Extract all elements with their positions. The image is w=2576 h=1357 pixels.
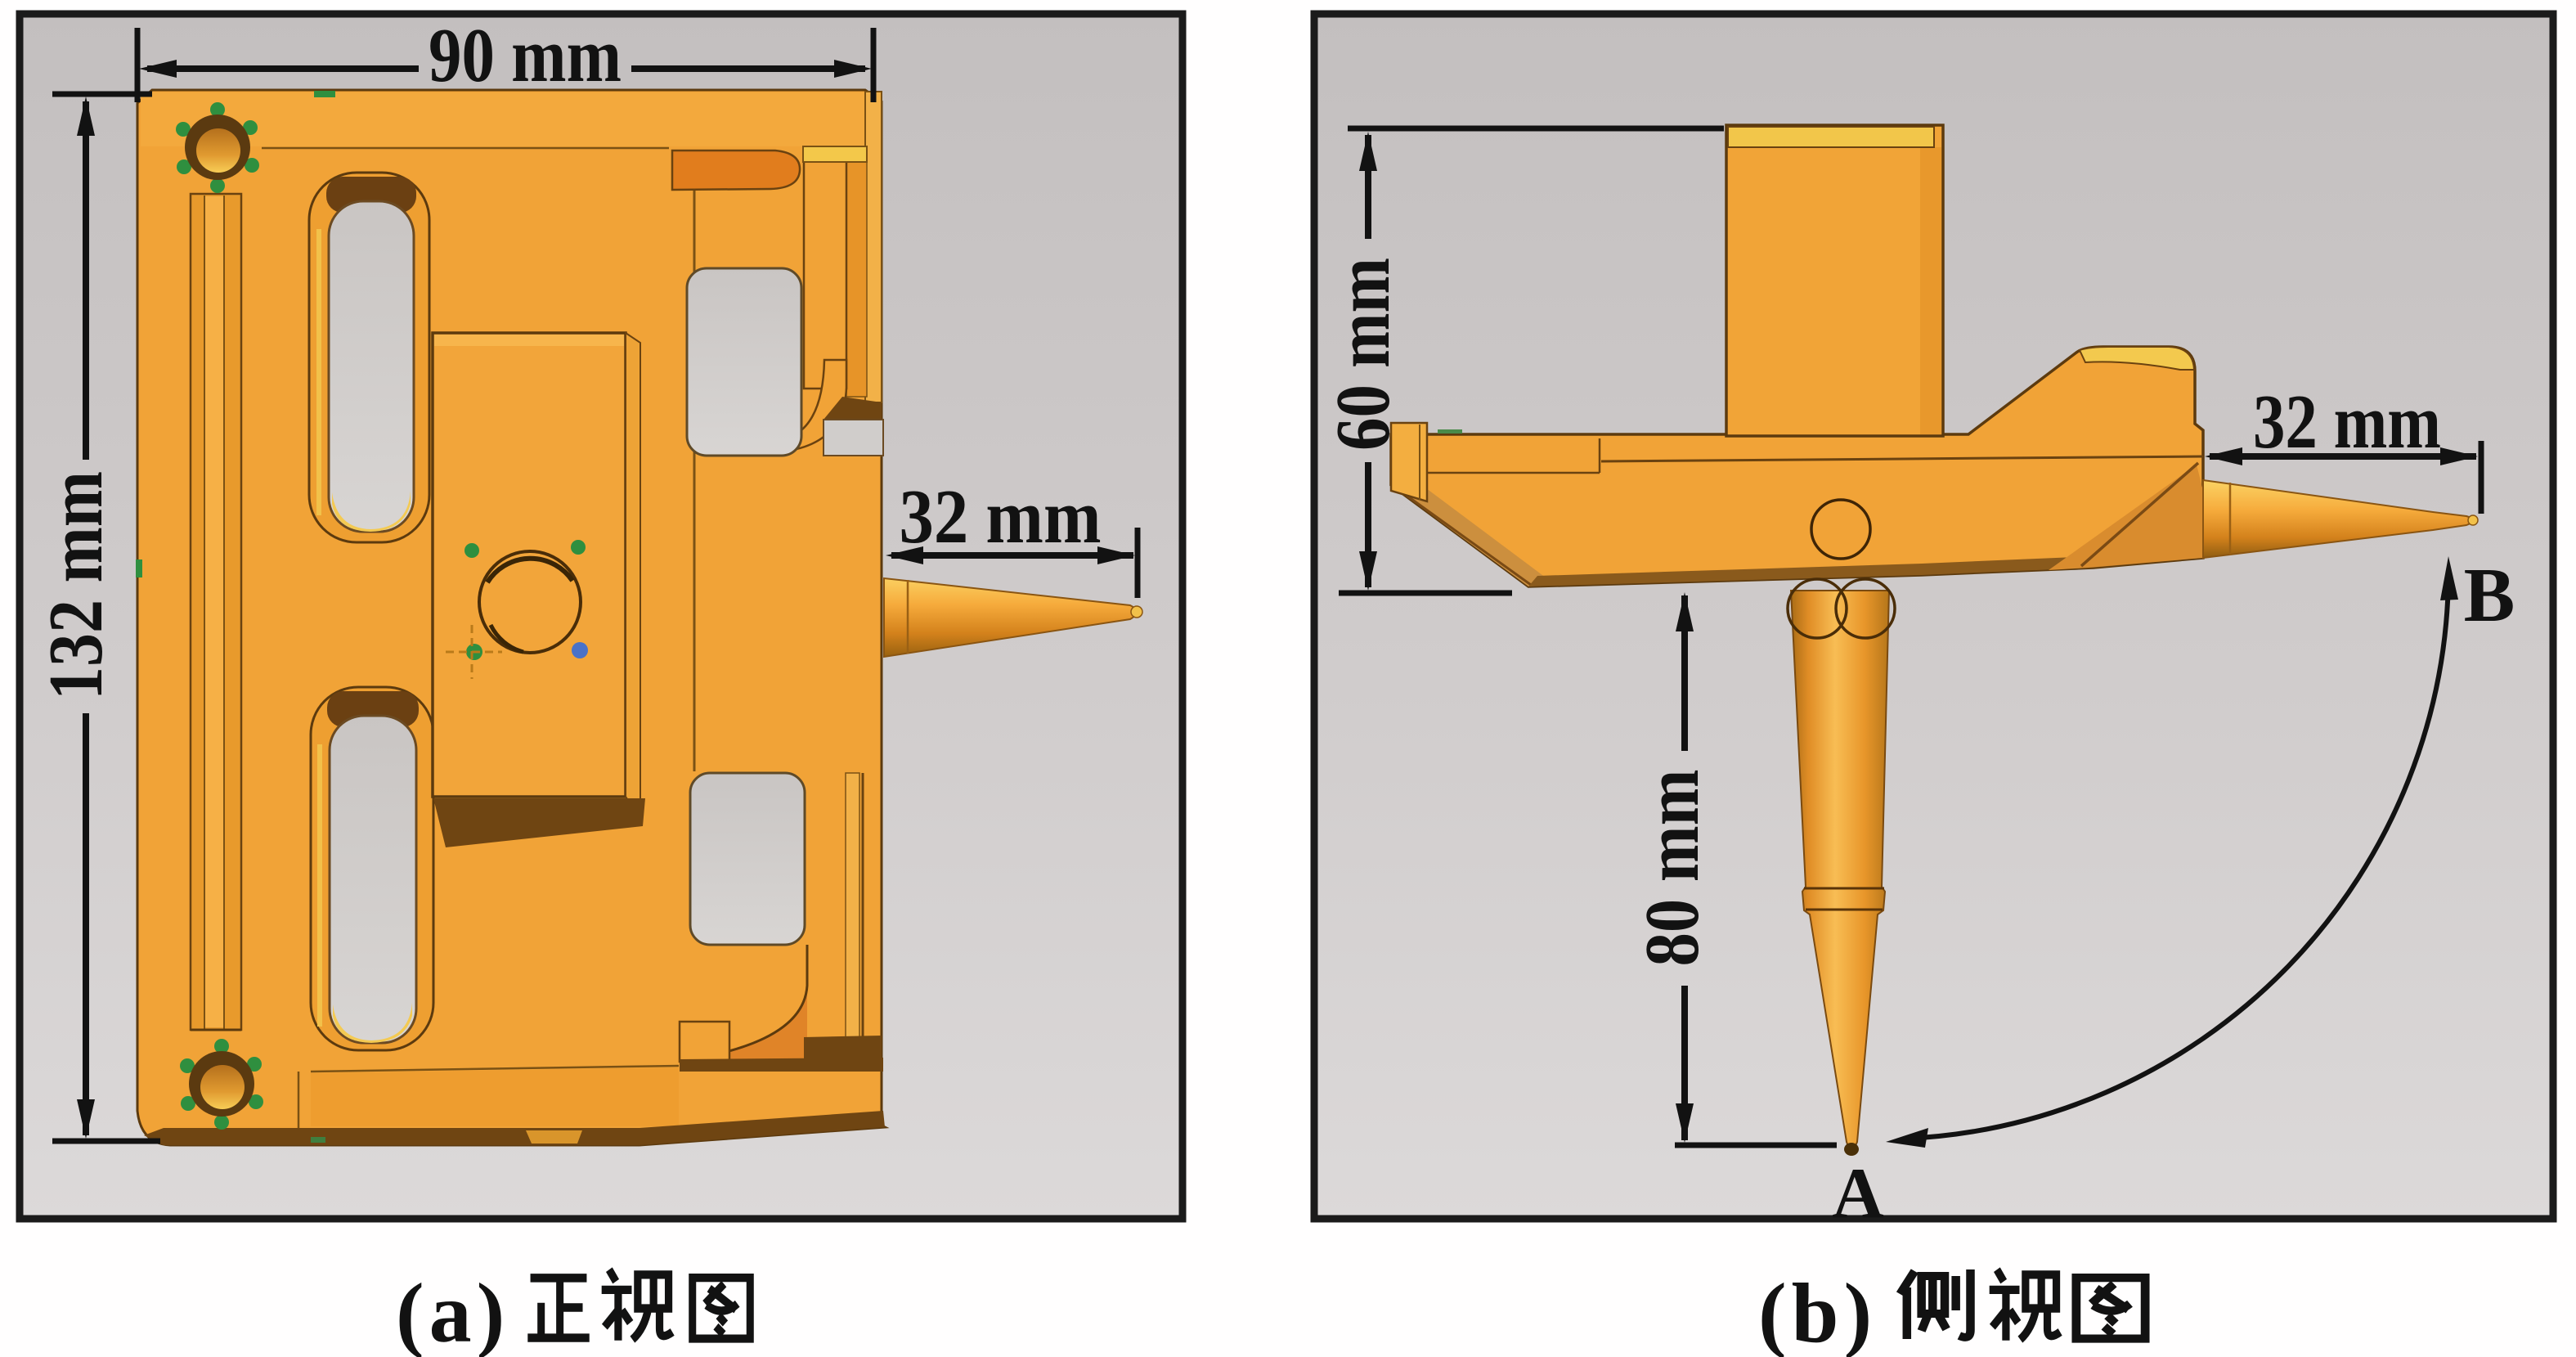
svg-text:32 mm: 32 mm (2253, 380, 2441, 465)
svg-text:(a): (a) (396, 1266, 509, 1357)
svg-text:(b): (b) (1758, 1266, 1877, 1357)
svg-text:A: A (1832, 1154, 1884, 1233)
svg-text:32 mm: 32 mm (900, 474, 1102, 559)
svg-text:B: B (2464, 553, 2515, 638)
svg-text:60 mm: 60 mm (1321, 258, 1406, 451)
svg-text:90 mm: 90 mm (429, 13, 622, 98)
svg-text:132 mm: 132 mm (34, 471, 119, 700)
svg-text:80 mm: 80 mm (1630, 770, 1715, 967)
